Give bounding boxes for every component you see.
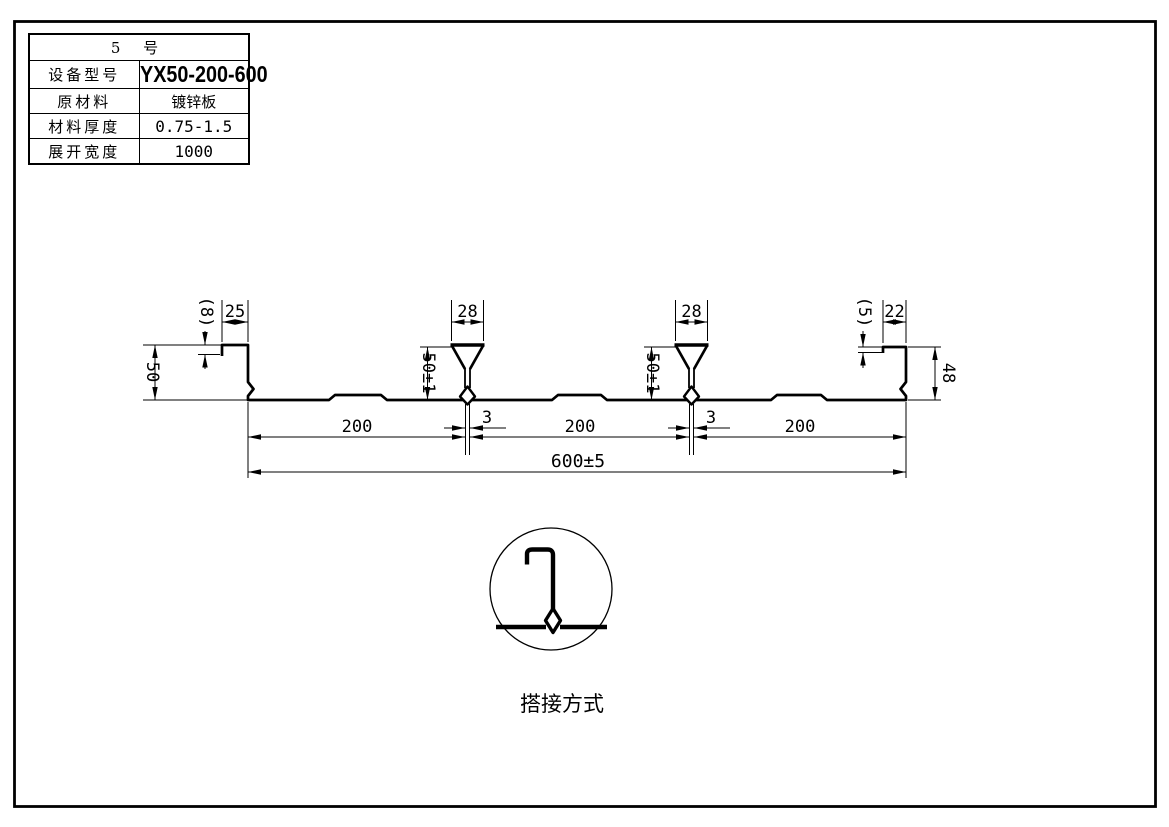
spec-label-coil-width: 展开宽度: [29, 139, 139, 165]
drawing-sheet: 25 28 28 22 (8) (5) 50 50±1 50±1 48 200 …: [0, 0, 1169, 827]
spec-value-model: YX50-200-600: [139, 61, 249, 89]
dim-text-600: 600±5: [551, 451, 605, 472]
detail-seam-crimp: [546, 609, 561, 633]
spec-value-material: 镀锌板: [139, 89, 249, 114]
dim-text-3-rib2: 3: [706, 408, 716, 428]
dimension-lines: [155, 322, 935, 472]
model-number: YX50-200-600: [140, 61, 268, 88]
dim-text-200-span3: 200: [785, 417, 816, 437]
dim-text-50: 50: [142, 362, 162, 382]
dim-text-22: 22: [884, 302, 904, 322]
dim-text-28-rib1: 28: [457, 302, 477, 322]
dim-text-200-span2: 200: [565, 417, 596, 437]
panel-profile-outline: [222, 345, 906, 455]
spec-value-coil-width: 1000: [139, 139, 249, 165]
detail-hook-web: [527, 550, 553, 610]
dim-text-28-rib2: 28: [681, 302, 701, 322]
dim-text-48: 48: [938, 363, 958, 383]
dim-text-200-span1: 200: [342, 417, 373, 437]
dim-text-8: (8): [196, 297, 216, 328]
machine-number: 5 号: [29, 34, 249, 61]
dim-text-25: 25: [225, 302, 245, 322]
detail-label: 搭接方式: [520, 692, 604, 716]
spec-label-thickness: 材料厚度: [29, 114, 139, 139]
lap-joint-detail: 搭接方式: [490, 528, 612, 716]
spec-label-model: 设备型号: [29, 61, 139, 89]
dim-text-3-rib1: 3: [482, 408, 492, 428]
spec-table: 5 号 设备型号 YX50-200-600 原材料 镀锌板 材料厚度 0.75-…: [28, 33, 250, 165]
spec-label-material: 原材料: [29, 89, 139, 114]
dim-text-50-rib1: 50±1: [418, 353, 438, 394]
dim-text-50-rib2: 50±1: [642, 353, 662, 394]
dimension-texts: 25 28 28 22 (8) (5) 50 50±1 50±1 48 200 …: [142, 297, 958, 472]
panel-base-line: [222, 345, 906, 400]
spec-value-thickness: 0.75-1.5: [139, 114, 249, 139]
extension-lines: [143, 300, 941, 478]
dim-text-5: (5): [854, 297, 874, 328]
